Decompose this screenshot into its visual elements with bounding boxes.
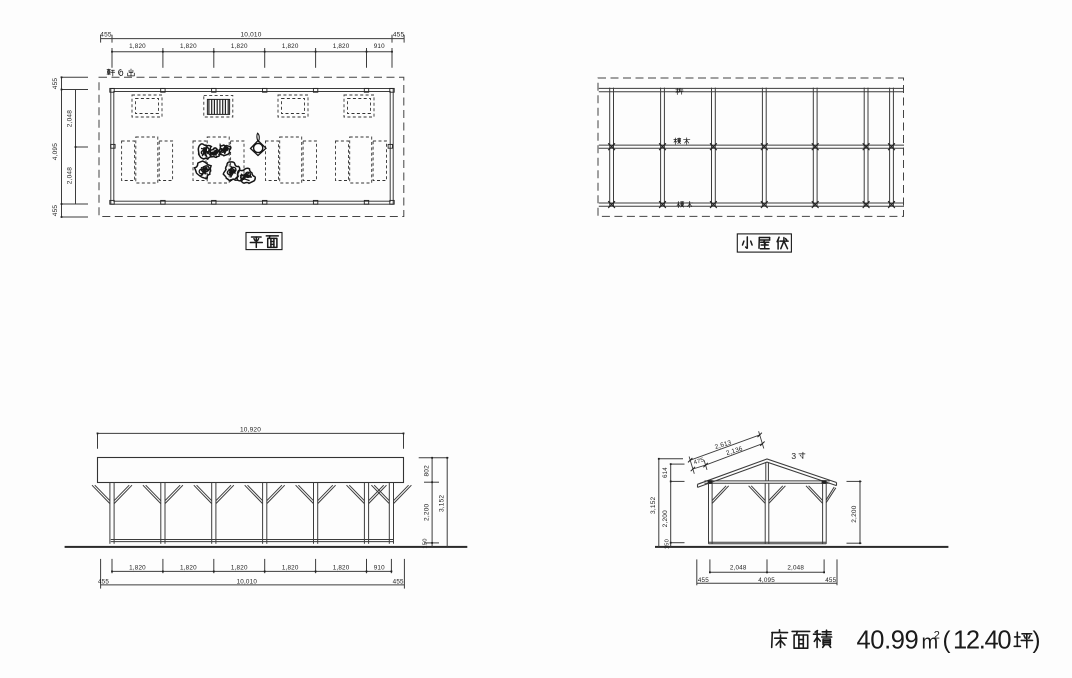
svg-text:2,048: 2,048 [730,565,747,572]
svg-text:2,048: 2,048 [67,167,74,184]
svg-text:802: 802 [423,465,430,477]
svg-text:2,048: 2,048 [67,110,74,127]
svg-text:910: 910 [374,564,385,571]
svg-text:3,152: 3,152 [650,496,657,513]
svg-text:10,010: 10,010 [240,32,261,39]
svg-text:455: 455 [98,578,109,585]
svg-text:1,820: 1,820 [333,564,350,571]
svg-text:3: 3 [791,451,796,461]
svg-text:1,820: 1,820 [231,43,248,50]
svg-text:2,200: 2,200 [851,505,858,522]
svg-text:455: 455 [825,577,836,584]
svg-text:455: 455 [52,78,59,90]
svg-text:4,095: 4,095 [52,143,59,160]
svg-text:2,048: 2,048 [787,565,804,572]
svg-text:1,820: 1,820 [282,43,299,50]
svg-text:4,095: 4,095 [758,577,775,584]
svg-text:455: 455 [100,32,112,39]
svg-text:150: 150 [422,538,428,548]
svg-text:1,820: 1,820 [129,564,146,571]
svg-text:1,820: 1,820 [333,43,350,50]
svg-text:1,820: 1,820 [129,43,146,50]
svg-text:): ) [1033,627,1041,654]
svg-text:2: 2 [934,630,940,642]
svg-text:1,820: 1,820 [180,564,197,571]
svg-text:2,200: 2,200 [423,503,430,520]
svg-text:455: 455 [52,205,59,217]
svg-text:910: 910 [374,43,385,50]
svg-text:10,920: 10,920 [240,427,261,434]
svg-text:2,200: 2,200 [662,510,669,527]
svg-text:455: 455 [393,578,404,585]
svg-text:1,820: 1,820 [180,43,197,50]
svg-text:3,152: 3,152 [439,495,446,512]
svg-text:10,010: 10,010 [237,578,258,585]
svg-text:455: 455 [698,577,709,584]
svg-text:1,820: 1,820 [282,564,299,571]
svg-text:455: 455 [393,32,405,39]
svg-text:12.40: 12.40 [953,626,1011,654]
svg-text:150: 150 [664,539,670,549]
svg-text:(: ( [943,627,951,654]
svg-text:40.99: 40.99 [857,626,919,654]
svg-text:1,820: 1,820 [231,564,248,571]
svg-text:614: 614 [663,467,669,478]
